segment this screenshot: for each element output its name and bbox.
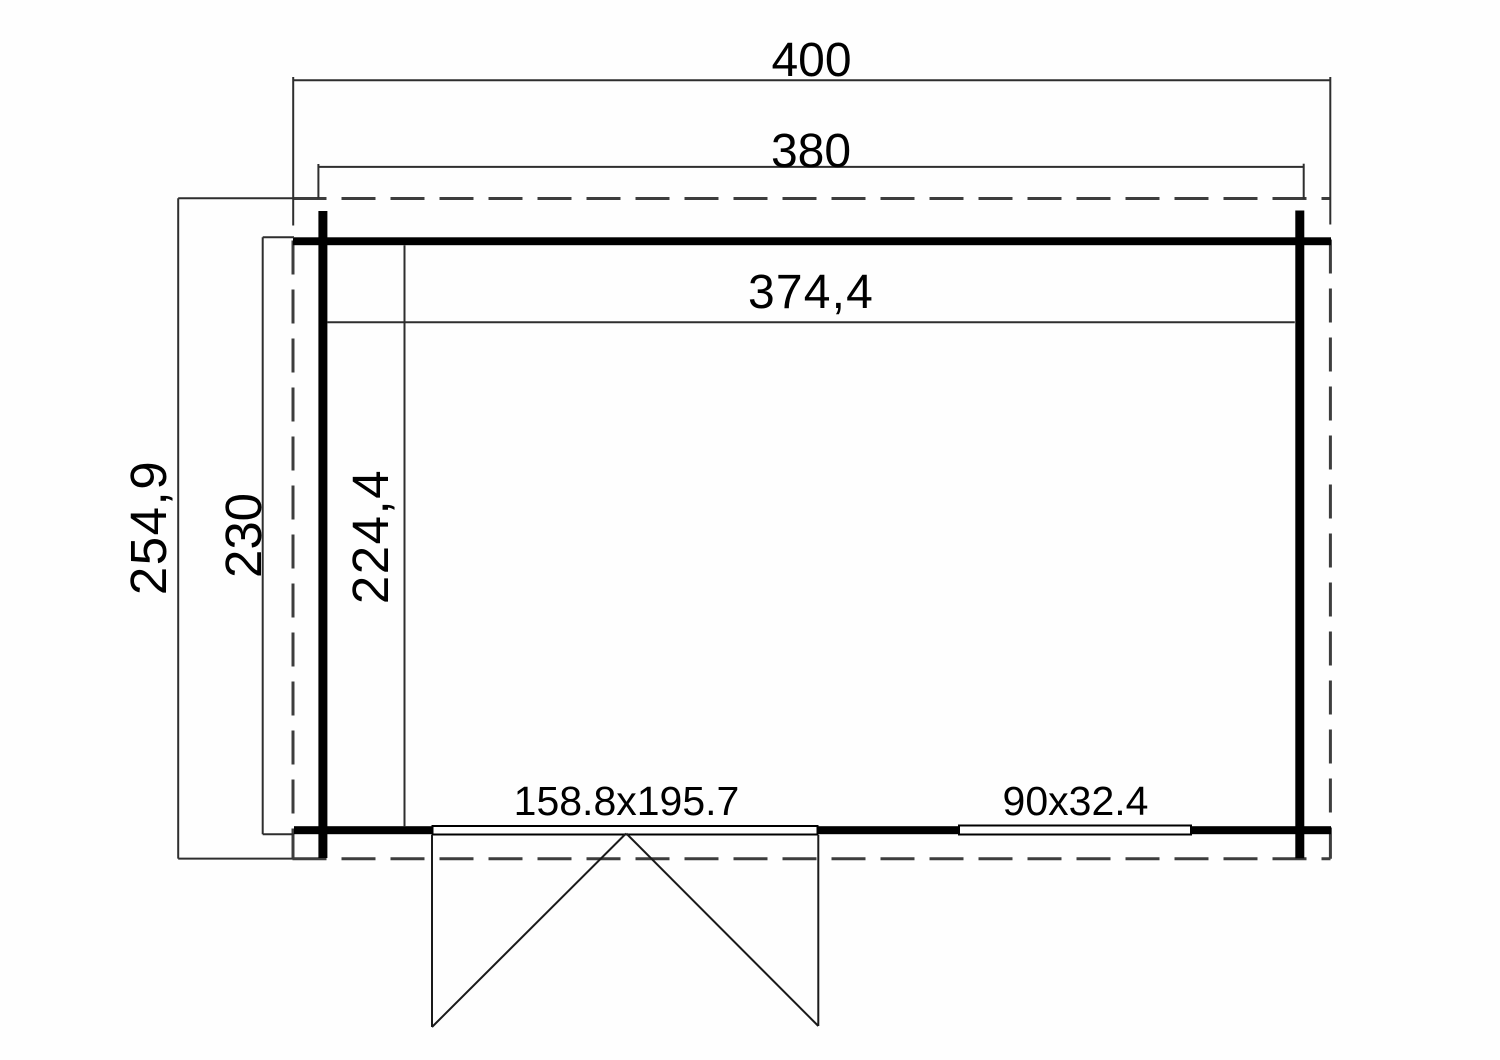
svg-text:400: 400 — [771, 34, 851, 87]
svg-text:254,9: 254,9 — [120, 460, 177, 595]
svg-text:158.8x195.7: 158.8x195.7 — [514, 778, 740, 824]
svg-text:380: 380 — [771, 125, 851, 178]
svg-text:224,4: 224,4 — [342, 469, 399, 604]
svg-text:374,4: 374,4 — [748, 266, 874, 319]
svg-text:90x32.4: 90x32.4 — [1003, 778, 1149, 824]
svg-text:230: 230 — [215, 493, 272, 578]
